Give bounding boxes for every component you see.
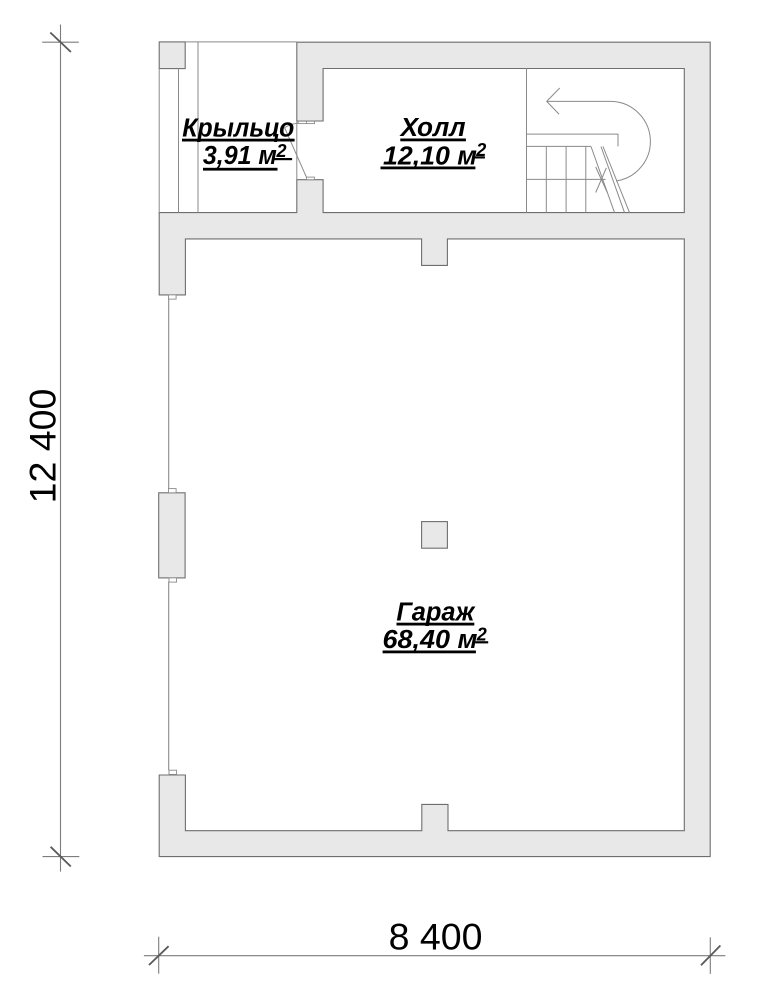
- svg-text:Крыльцо: Крыльцо: [182, 114, 294, 142]
- svg-text:12 400: 12 400: [22, 389, 64, 504]
- svg-text:Гараж: Гараж: [396, 598, 475, 626]
- svg-text:8 400: 8 400: [389, 915, 483, 957]
- svg-text:3,91 м: 3,91 м: [203, 142, 277, 170]
- svg-text:12,10 м: 12,10 м: [383, 143, 477, 171]
- svg-text:68,40 м: 68,40 м: [383, 626, 478, 654]
- svg-text:Холл: Холл: [399, 114, 466, 142]
